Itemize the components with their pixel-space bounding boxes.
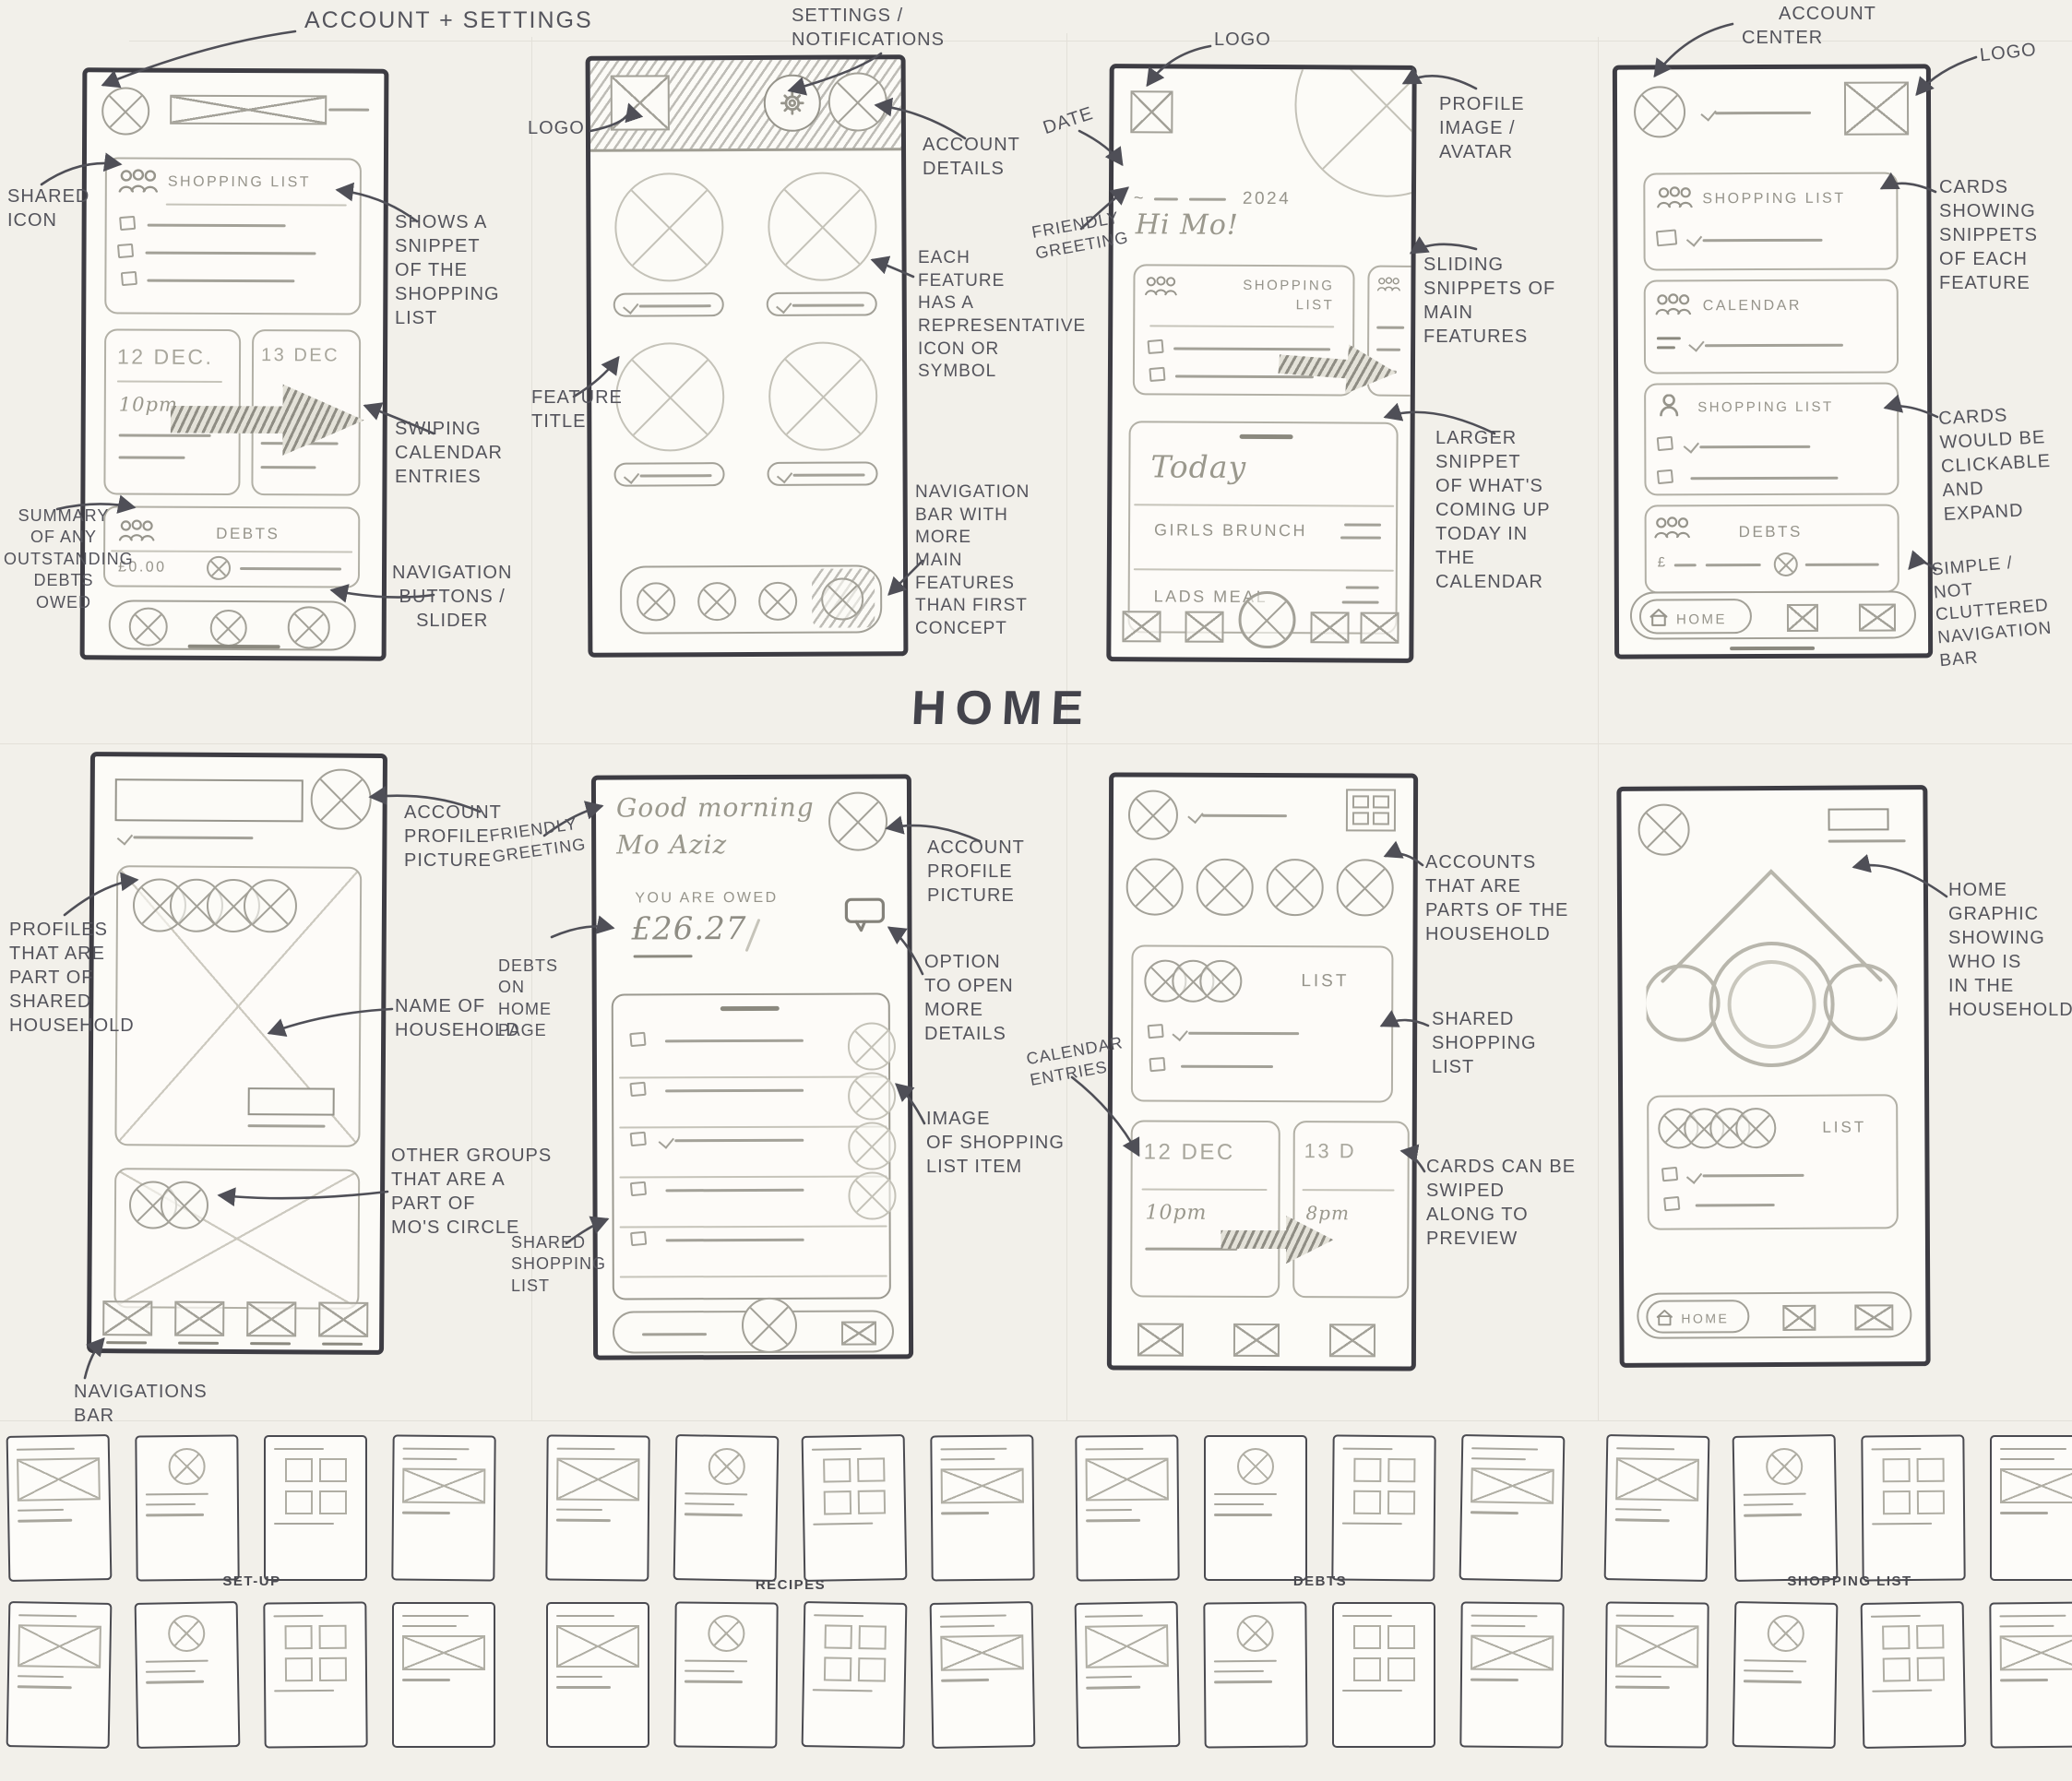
annotation-snippet: SHOWS A SNIPPET OF THE SHOPPING LIST (395, 210, 500, 330)
calendar-date: 12 DEC. (117, 341, 214, 372)
feature-title-pill (614, 462, 725, 487)
thumbnail-sketch (1332, 1602, 1435, 1748)
thumbnail-sketch (1733, 1601, 1839, 1749)
divider-line (619, 1175, 887, 1178)
sketch-line (1703, 239, 1823, 242)
nav-mail-button (1854, 1304, 1893, 1330)
annotation-debts-summary: SUMMARY OF ANY OUTSTANDING DEBTS OWED (4, 505, 124, 613)
divider-line (619, 1075, 887, 1078)
currency-symbol: £ (1658, 552, 1668, 572)
thumbnail-sketch (930, 1435, 1034, 1582)
annotation-shared-list-c6: SHARED SHOPPING LIST (511, 1232, 606, 1297)
account-settings-icon (101, 87, 149, 135)
people-icon (1655, 292, 1692, 315)
annotation-home-graphic: HOME GRAPHIC SHOWING WHO IS IN THE HOUSE… (1948, 878, 2072, 1022)
avatar-placeholder (1774, 552, 1798, 576)
annotation-date: DATE (1040, 101, 1096, 140)
greeting-line-2: Mo Aziz (616, 829, 727, 860)
divider-line (1134, 568, 1394, 572)
nav-button (637, 582, 675, 621)
thumbnail-sketch (391, 1435, 495, 1582)
annotation-larger-snippet: LARGER SNIPPET OF WHAT'S COMING UP TODAY… (1435, 426, 1551, 594)
annotation-cards-clickable: CARDS WOULD BE CLICKABLE AND EXPAND (1938, 401, 2054, 527)
annotation-cards-swiped: CARDS CAN BE SWIPED ALONG TO PREVIEW (1426, 1155, 1576, 1251)
calendar-card-13-dec: 13 D 8pm (1292, 1121, 1410, 1298)
annotation-feature-title: FEATURE TITLE (531, 386, 623, 433)
nav-button (129, 608, 168, 647)
shared-list-card: LIST (1647, 1094, 1899, 1229)
check-mark (1172, 1025, 1187, 1041)
annotation-account-details: ACCOUNT DETAILS (923, 133, 1020, 181)
checkbox-sketch (1148, 1024, 1164, 1039)
account-icon (1128, 790, 1178, 839)
shopping-list-card: SHOPPING LIST (1643, 172, 1898, 271)
people-icon (118, 518, 155, 540)
person-icon (1659, 394, 1679, 416)
checkbox-sketch (629, 1082, 646, 1097)
greeting-text: Hi Mo! (1136, 208, 1239, 242)
check-mark (1686, 1168, 1702, 1184)
date-squiggle: ~ (1134, 186, 1146, 209)
account-icon (828, 72, 887, 131)
sketch-line (1154, 197, 1178, 200)
apps-grid-icon (1346, 789, 1396, 831)
sketch-line (1202, 814, 1287, 817)
card-title: SHOPPING LIST (1196, 276, 1334, 315)
sketch-line (106, 1341, 147, 1344)
member-avatar (1735, 1108, 1776, 1148)
section-label-recipes: RECIPES (546, 1577, 1035, 1593)
wireframe-concept-7: LIST 12 DEC 10pm 13 D 8pm (1107, 772, 1418, 1371)
sketch-line (1346, 586, 1379, 588)
annotation-debts-home: DEBTS ON HOME PAGE (498, 956, 558, 1042)
card-title: CALENDAR (1703, 296, 1802, 317)
nav-mail-button (1859, 604, 1896, 632)
account-profile-avatar (828, 791, 887, 850)
thumbnail-sketch (1861, 1435, 1965, 1582)
debts-card: DEBTS £0.00 (103, 505, 360, 588)
annotation-nav-bar-c2: NAVIGATION BAR WITH MORE MAIN FEATURES T… (915, 481, 1030, 641)
divider-line (619, 1125, 887, 1128)
checkbox-sketch (630, 1231, 647, 1246)
calendar-time: 10pm (1145, 1202, 1207, 1225)
divider-line (1134, 504, 1394, 507)
annotation-profiles: PROFILES THAT ARE PART OF SHARED HOUSEHO… (9, 918, 135, 1038)
annotation-sliding-snippets: SLIDING SNIPPETS OF MAIN FEATURES (1423, 253, 1555, 349)
owed-label: YOU ARE OWED (635, 888, 778, 909)
check-mark (776, 297, 792, 314)
home-indicator (1730, 647, 1815, 650)
thumbnail-sketch (1204, 1435, 1307, 1581)
gear-icon (778, 89, 807, 118)
annotation-simple-nav: SIMPLE / NOT CLUTTERED NAVIGATION BAR (1931, 548, 2072, 673)
sketch-line (240, 567, 341, 570)
sketch-line (1189, 198, 1226, 201)
profile-avatar (1294, 64, 1417, 197)
nav-center-button (742, 1298, 797, 1353)
title-box (1828, 808, 1888, 830)
sketch-line (639, 304, 711, 307)
sketch-line (665, 1089, 804, 1092)
other-group-card (113, 1168, 360, 1310)
nav-button (821, 577, 863, 620)
nav-button (318, 1302, 368, 1337)
nav-button (102, 1300, 152, 1336)
navigation-bar (620, 564, 882, 634)
annotation-account-profile-c6: ACCOUNT PROFILE PICTURE (927, 836, 1025, 908)
sketch-line (119, 456, 185, 458)
divider-line (620, 1225, 887, 1228)
sketch-line (119, 433, 211, 436)
checkbox-sketch (1149, 1057, 1165, 1072)
list-item-image (848, 1072, 896, 1120)
sketch-line (1376, 349, 1400, 351)
paper-seam (0, 1420, 2072, 1421)
wireframe-concept-3: ~ 2024 Hi Mo! SHOPPING LIST Today GIRLS … (1106, 64, 1416, 663)
nav-button (174, 1301, 224, 1336)
nav-mail-button (1233, 1324, 1280, 1357)
sketch-line (1706, 564, 1761, 566)
home-nav-button: HOME (1639, 599, 1752, 634)
people-icon (1656, 185, 1693, 208)
sketch-line (147, 279, 294, 282)
wireframe-concept-4: SHOPPING LIST CALENDAR SHOPPING LIST DEB… (1613, 64, 1933, 659)
sketch-line (1344, 523, 1381, 526)
people-icon (1654, 516, 1691, 538)
annotation-cards-snippets: CARDS SHOWING SNIPPETS OF EACH FEATURE (1939, 175, 2038, 295)
navigation-bar: HOME (1637, 1291, 1911, 1339)
feature-circle (768, 341, 878, 451)
checkbox-sketch (629, 1032, 646, 1047)
feature-circle (614, 172, 724, 282)
thumbnail-sketch (545, 1435, 649, 1582)
nav-button (1787, 604, 1818, 632)
nav-button (246, 1301, 296, 1336)
annotation-accounts-household: ACCOUNTS THAT ARE PARTS OF THE HOUSEHOLD (1425, 850, 1568, 946)
account-center-icon (1634, 86, 1685, 137)
sketch-line (1699, 445, 1810, 448)
divider-line (1142, 1189, 1268, 1192)
annotation-list-image: IMAGE OF SHOPPING LIST ITEM (926, 1107, 1065, 1179)
annotation-account-settings: ACCOUNT + SETTINGS (304, 6, 593, 36)
card-title: SHOPPING LIST (1702, 189, 1845, 210)
sketch-dash (720, 1006, 780, 1011)
faint-slash (745, 919, 761, 952)
sketch-line (248, 1124, 326, 1127)
thumbnail-sketch (673, 1602, 778, 1749)
annotation-shared-icon: SHARED ICON (7, 184, 89, 232)
thumbnail-sketch (135, 1435, 239, 1582)
avatar-placeholder (207, 556, 231, 580)
household-account-avatar (1197, 859, 1254, 916)
nav-center-button (1238, 591, 1295, 648)
checkbox-sketch (119, 216, 136, 231)
thumbnail-sketch (1331, 1435, 1435, 1582)
thumbnail-sketch (1459, 1602, 1564, 1749)
member-avatar (1199, 960, 1242, 1003)
sketch-line (1175, 375, 1314, 378)
feature-title-pill (768, 461, 878, 486)
checkbox-sketch (630, 1181, 647, 1196)
annotation-settings-notifications: SETTINGS / NOTIFICATIONS (782, 4, 945, 52)
check-mark (624, 468, 639, 484)
sketch-line (322, 1343, 363, 1346)
sketch-line (642, 1333, 707, 1336)
feature-title-pill (613, 292, 724, 317)
household-account-avatar (1337, 859, 1394, 916)
sketch-line (1188, 1032, 1299, 1035)
logo-icon (611, 75, 670, 130)
shared-people-icon (1144, 275, 1177, 295)
check-mark (1684, 437, 1699, 454)
sketch-line (665, 1189, 804, 1192)
sketch-line (148, 224, 286, 227)
sketch-line (640, 474, 712, 477)
nav-mail-button (1310, 611, 1349, 643)
checkbox-sketch (1657, 469, 1673, 484)
sketch-line (665, 1039, 804, 1042)
thumbnail-sketch (1989, 1602, 2072, 1749)
list-title: LIST (1301, 969, 1349, 994)
nav-button (288, 606, 330, 648)
thumbnail-sketch (1075, 1601, 1181, 1749)
shared-people-icon (118, 168, 159, 192)
sketch-line (1674, 564, 1697, 566)
thumbnail-sketch (1075, 1435, 1179, 1582)
greeting-line-1: Good morning (616, 792, 815, 824)
sketch-line (1715, 112, 1811, 114)
thumbnail-sketch (6, 1434, 113, 1582)
sketch-line (1657, 337, 1681, 339)
sketch-sheet: { "colors":{"ink":"#54545c","pencil":"#9… (0, 0, 2072, 1781)
sketch-line (328, 108, 369, 111)
people-icon (1376, 277, 1400, 291)
annotation-open-details: OPTION TO OPEN MORE DETAILS (924, 950, 1014, 1046)
checkbox-sketch (1661, 1167, 1678, 1182)
calendar-date: 13 DEC (261, 342, 339, 368)
title-bar-placeholder (170, 95, 327, 125)
sketch-line (1657, 346, 1675, 349)
sketch-line (1828, 839, 1906, 842)
wireframe-concept-8: LIST HOME (1616, 785, 1930, 1368)
home-label: HOME (1681, 1310, 1729, 1328)
debts-card: DEBTS £ (1645, 505, 1899, 594)
thumbnail-sketch (1203, 1602, 1307, 1749)
thumbnail-sketch (1459, 1434, 1566, 1582)
feature-circle (615, 342, 725, 452)
home-indicator (188, 645, 280, 648)
checkbox-sketch (117, 243, 134, 258)
sketch-line (792, 303, 864, 306)
annotation-logo-c4: LOGO (1979, 38, 2038, 67)
thumbnail-sketch (1733, 1434, 1839, 1582)
sketch-line (1181, 1065, 1273, 1068)
house-icon (1655, 1309, 1673, 1327)
annotation-feature-icon: EACH FEATURE HAS A REPRESENTATIVE ICON O… (918, 247, 1086, 384)
nav-mail-button (841, 1322, 876, 1346)
household-account-avatar (1126, 858, 1184, 915)
sketch-dash (1240, 434, 1293, 439)
shared-list-card: LIST (1131, 945, 1394, 1103)
section-label-setup: SET-UP (7, 1573, 496, 1589)
navigation-bar: HOME (1630, 590, 1916, 639)
checkbox-sketch (121, 271, 137, 286)
household-card (114, 865, 362, 1147)
navigation-bar (109, 600, 356, 650)
sketch-line (1690, 477, 1838, 480)
household-name-box (248, 1087, 335, 1116)
nav-mail-button (1360, 612, 1399, 644)
thumbnail-sketch (6, 1601, 113, 1749)
calendar-card-12-dec: 12 DEC 10pm (1130, 1121, 1280, 1299)
thumbnail-sketch (1604, 1434, 1710, 1582)
thumbnail-sketch (263, 1602, 367, 1749)
nav-mail-button (1185, 611, 1223, 643)
annotation-account-profile-c5: ACCOUNT PROFILE PICTURE (404, 801, 502, 873)
annotation-nav-bar-c5: NAVIGATIONS BAR (74, 1380, 208, 1428)
annotation-logo-c2: LOGO (528, 116, 585, 140)
settings-gear-icon (764, 75, 821, 132)
date-year: 2024 (1243, 187, 1291, 212)
sketch-line (1376, 327, 1404, 329)
thumbnail-sketch (1604, 1602, 1709, 1749)
wireframe-concept-5 (87, 752, 387, 1355)
navigation-bar (613, 1310, 894, 1353)
feature-circle (768, 172, 877, 281)
annotation-friendly-greeting-c6: FRIENDLY GREETING (488, 813, 588, 869)
details-bubble-icon (843, 896, 886, 933)
thumbnail-sketch (1861, 1601, 1967, 1749)
nav-button (697, 582, 736, 621)
household-account-avatar (1267, 859, 1324, 916)
list-item-image (848, 1122, 896, 1170)
thumbnail-sketch (264, 1435, 367, 1581)
annotation-other-groups: OTHER GROUPS THAT ARE A PART OF MO'S CIR… (391, 1144, 552, 1240)
thumbnail-sketch (546, 1602, 649, 1748)
sketch-line (250, 1342, 291, 1345)
sketch-line (1696, 1204, 1775, 1206)
annotation-nav-buttons: NAVIGATION BUTTONS / SLIDER (392, 561, 512, 633)
wireframe-concept-1: SHOPPING LIST 12 DEC. 10pm 13 DEC DEBTS … (80, 67, 389, 660)
annotation-profile-image: PROFILE IMAGE / AVATAR (1439, 92, 1525, 164)
logo-icon (1844, 81, 1909, 135)
sketch-line (111, 550, 352, 553)
annotation-swiping: SWIPING CALENDAR ENTRIES (395, 417, 503, 489)
check-mark (1688, 336, 1704, 352)
thumbnail-sketch (930, 1601, 1036, 1749)
list-item-image (848, 1022, 896, 1070)
nav-button (210, 610, 247, 647)
profile-avatar (244, 879, 297, 932)
sketch-line (674, 1139, 804, 1142)
sketch-line (1340, 536, 1381, 539)
check-mark (1686, 231, 1702, 247)
underline (634, 955, 693, 957)
thumbnail-sketch (802, 1434, 908, 1582)
nav-mail-button (1329, 1324, 1375, 1357)
sketch-line (166, 204, 347, 207)
nav-mail-button (1122, 611, 1161, 642)
paper-seam (0, 743, 2072, 744)
calendar-card: CALENDAR (1644, 279, 1899, 374)
sketch-line (117, 380, 222, 383)
sketch-line (133, 836, 253, 838)
home-nav-button: HOME (1646, 1300, 1749, 1334)
calendar-date: 12 DEC (1144, 1137, 1235, 1169)
home-label: HOME (1676, 610, 1727, 629)
section-label-shopping-list: SHOPPING LIST (1605, 1573, 2072, 1589)
paper-seam (1598, 37, 1599, 1420)
today-title: Today (1150, 448, 1246, 485)
account-profile-avatar (310, 768, 371, 829)
card-title: DEBTS (1739, 521, 1803, 543)
thumbnail-sketch (802, 1601, 908, 1749)
annotation-shared-list-c7: SHARED SHOPPING LIST (1432, 1007, 1537, 1079)
check-mark (623, 298, 638, 315)
sketch-line (793, 473, 865, 476)
sketch-line (1703, 1174, 1804, 1177)
sketch-line (1705, 344, 1843, 347)
calendar-time: 8pm (1305, 1202, 1350, 1224)
checkbox-sketch (1663, 1196, 1680, 1212)
thumbnail-sketch (392, 1602, 495, 1748)
owed-amount: £26.27 (631, 910, 746, 947)
thumbnail-sketch (1990, 1435, 2072, 1581)
logo-icon (1130, 90, 1173, 133)
card-title: SHOPPING LIST (168, 172, 311, 194)
calendar-event: GIRLS BRUNCH (1154, 518, 1307, 542)
thumbnail-sketch (135, 1601, 241, 1749)
nav-mail-button (1782, 1305, 1816, 1331)
household-name-field (115, 778, 304, 822)
checkbox-sketch (1656, 229, 1677, 246)
profile-avatar (161, 1181, 208, 1229)
annotation-account-center: ACCOUNT CENTER (1736, 2, 1876, 50)
shared-shopping-list-card (612, 992, 891, 1300)
account-icon (1637, 803, 1689, 855)
section-label-debts: DEBTS (1076, 1573, 1565, 1589)
wireframe-concept-2 (586, 54, 909, 658)
page-title-home: HOME (910, 681, 1093, 736)
card-title: DEBTS (216, 523, 280, 545)
sketch-line (1173, 348, 1330, 350)
wireframe-concept-6: Good morning Mo Aziz YOU ARE OWED £26.27 (591, 774, 913, 1359)
sketch-line (1805, 564, 1879, 566)
calendar-date: 13 D (1304, 1137, 1357, 1166)
household-home-graphic (1646, 861, 1898, 1084)
calendar-time: 10pm (119, 393, 178, 415)
check-mark (659, 1133, 674, 1149)
card-title: SHOPPING LIST (1697, 398, 1834, 418)
sketch-line (1342, 600, 1379, 603)
sketch-line (178, 1342, 219, 1345)
nav-mail-button (1137, 1324, 1184, 1357)
check-mark (777, 467, 792, 483)
annotation-logo-c3: LOGO (1214, 28, 1271, 52)
list-title: LIST (1822, 1116, 1866, 1138)
nav-button (758, 582, 797, 621)
checkbox-sketch (1657, 436, 1673, 451)
sketch-line (261, 466, 316, 469)
list-item-image (848, 1171, 896, 1219)
checkbox-sketch (1148, 339, 1164, 354)
feature-title-pill (767, 291, 877, 316)
check-mark (117, 829, 133, 846)
checkbox-sketch (630, 1132, 647, 1146)
shopping-list-card-2: SHOPPING LIST (1644, 383, 1899, 496)
thumbnail-sketch (673, 1434, 780, 1582)
sketch-line (1149, 325, 1334, 327)
